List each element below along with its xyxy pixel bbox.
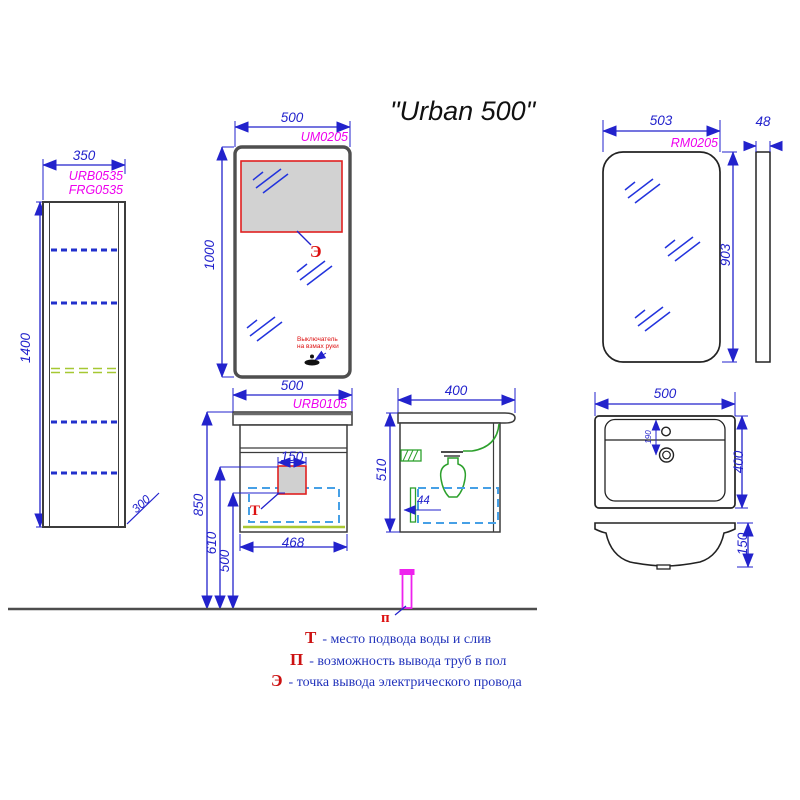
mirror-rm-height-dim: 903 — [719, 233, 735, 277]
switch-note-line-2: на взмах руки — [297, 343, 339, 350]
sink-top-view — [595, 392, 748, 508]
sink-side-view — [595, 523, 753, 569]
mirror-rm-code: RM0205 — [648, 136, 718, 150]
tall-cabinet-width-dim: 350 — [54, 149, 114, 163]
legend-symbol-water: Т — [305, 629, 316, 646]
pipe-offset-dim: 44 — [417, 496, 447, 508]
vanity-inner-width-dim: 468 — [263, 536, 323, 550]
mirror-rm-thickness-dim: 48 — [743, 115, 783, 129]
floor-pipe-marker: п — [381, 611, 390, 626]
tall-cabinet-codes: URB0535 FRG0535 — [53, 169, 123, 198]
sink-faucet-offset-dim: 190 — [645, 422, 655, 452]
mirror-um-code: UM0205 — [278, 130, 348, 144]
floor-and-pipe — [8, 569, 537, 615]
legend-row-water: Т - место подвода воды и слив — [305, 629, 491, 647]
vanity-side-depth-dim: 400 — [426, 384, 486, 398]
mirror-um-width-dim: 500 — [262, 111, 322, 125]
tall-cabinet-code-1: URB0535 — [53, 169, 123, 183]
vanity-side-view — [386, 388, 515, 532]
mirror-rm-view — [603, 120, 782, 362]
electric-point-marker: Э — [310, 243, 322, 260]
sink-depth-dim: 400 — [732, 440, 748, 484]
tall-cabinet-height-dim: 1400 — [19, 326, 35, 370]
legend-symbol-floor-pipes: П — [290, 651, 303, 668]
legend-text-water: - место подвода воды и слив — [322, 633, 491, 647]
sink-bowl-height-dim: 150 — [736, 522, 752, 566]
sink-width-dim: 500 — [635, 387, 695, 401]
technical-drawing-canvas: "Urban 500" 350 URB0535 FRG0535 1400 300… — [0, 0, 800, 800]
legend-symbol-electric: Э — [271, 672, 283, 689]
tall-cabinet-code-2: FRG0535 — [53, 183, 123, 197]
vanity-width-dim: 500 — [262, 379, 322, 393]
vanity-side-height-dim: 510 — [375, 448, 391, 492]
legend-text-electric: - точка вывода электрического провода — [289, 676, 522, 690]
legend-row-floor-pipes: П - возможность вывода труб в пол — [290, 651, 506, 669]
mirror-rm-width-dim: 503 — [631, 114, 691, 128]
water-point-marker: Т — [250, 504, 260, 519]
page-title: "Urban 500" — [390, 98, 535, 125]
vanity-zone-width-dim: 150 — [272, 450, 312, 464]
tall-cabinet-view — [36, 159, 159, 527]
switch-note: Выключатель на взмах руки — [297, 336, 339, 351]
vanity-zone-bottom-height-dim: 500 — [218, 539, 234, 583]
vanity-code: URB0105 — [277, 397, 347, 411]
legend-text-floor-pipes: - возможность вывода труб в пол — [309, 655, 506, 669]
mirror-um-height-dim: 1000 — [203, 233, 219, 277]
legend-row-electric: Э - точка вывода электрического провода — [271, 672, 522, 690]
switch-note-line-1: Выключатель — [297, 336, 339, 343]
